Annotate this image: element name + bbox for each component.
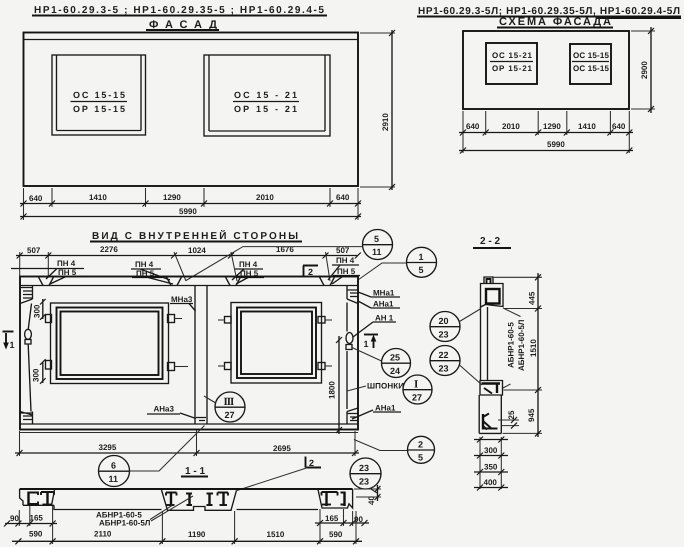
svg-text:27: 27 <box>412 393 422 403</box>
svg-text:23: 23 <box>359 477 369 487</box>
svg-text:300: 300 <box>32 368 41 382</box>
svg-text:III: III <box>224 396 235 408</box>
svg-text:ПН 4: ПН 4 <box>135 260 154 269</box>
svg-text:25: 25 <box>507 410 516 419</box>
svg-text:СХЕМА ФАСАДА: СХЕМА ФАСАДА <box>499 16 612 28</box>
svg-text:1: 1 <box>419 252 424 262</box>
svg-text:5990: 5990 <box>547 140 565 149</box>
svg-text:23: 23 <box>439 330 449 340</box>
svg-text:МНа1: МНа1 <box>373 289 395 298</box>
svg-text:3295: 3295 <box>99 443 117 452</box>
svg-text:НР1-60.29.3-5 ; НР1-60.29.35-5: НР1-60.29.3-5 ; НР1-60.29.35-5 ; НР1-60.… <box>34 5 324 16</box>
svg-text:590: 590 <box>329 530 343 539</box>
svg-text:5990: 5990 <box>179 207 197 216</box>
svg-text:ПН 4: ПН 4 <box>57 259 76 268</box>
svg-text:5: 5 <box>418 453 423 463</box>
svg-text:640: 640 <box>612 122 626 131</box>
svg-text:1: 1 <box>10 340 15 350</box>
svg-text:ВИД С ВНУТРЕННЕЙ СТОРОНЫ: ВИД С ВНУТРЕННЕЙ СТОРОНЫ <box>92 229 300 242</box>
svg-text:ОР 15-21: ОР 15-21 <box>492 64 533 73</box>
svg-text:300: 300 <box>484 446 498 455</box>
svg-text:ПН 4: ПН 4 <box>336 256 355 265</box>
svg-text:507: 507 <box>27 246 41 255</box>
svg-text:2: 2 <box>308 267 313 277</box>
svg-text:1800: 1800 <box>328 381 337 399</box>
svg-text:5: 5 <box>374 234 379 244</box>
svg-text:1 - 1: 1 - 1 <box>185 466 205 477</box>
svg-text:2276: 2276 <box>100 245 118 254</box>
svg-text:ОС 15-15: ОС 15-15 <box>573 64 610 73</box>
svg-text:90: 90 <box>354 515 363 524</box>
svg-text:640: 640 <box>29 194 43 203</box>
svg-text:АНа1: АНа1 <box>375 404 396 413</box>
svg-text:11: 11 <box>372 247 382 257</box>
svg-text:1510: 1510 <box>267 530 285 539</box>
svg-text:1410: 1410 <box>89 193 107 202</box>
svg-text:1510: 1510 <box>529 339 538 357</box>
svg-text:2910: 2910 <box>381 113 390 131</box>
svg-text:445: 445 <box>528 291 537 305</box>
svg-text:22: 22 <box>439 350 449 360</box>
svg-text:МНа3: МНа3 <box>171 295 193 304</box>
svg-text:2010: 2010 <box>256 193 274 202</box>
svg-text:I: I <box>414 379 418 391</box>
svg-text:6: 6 <box>111 461 116 471</box>
svg-text:2: 2 <box>418 440 423 450</box>
svg-text:350: 350 <box>484 463 498 472</box>
svg-text:2110: 2110 <box>94 530 112 539</box>
svg-text:24: 24 <box>390 366 400 376</box>
svg-text:ШПОНКИ: ШПОНКИ <box>367 382 404 391</box>
svg-text:165: 165 <box>325 514 339 523</box>
svg-text:90: 90 <box>10 514 19 523</box>
svg-text:1290: 1290 <box>543 122 561 131</box>
svg-text:ОС 15 - 21: ОС 15 - 21 <box>234 90 297 100</box>
svg-text:1: 1 <box>364 339 369 349</box>
svg-text:1410: 1410 <box>578 122 596 131</box>
svg-text:640: 640 <box>466 122 480 131</box>
svg-text:АН 1: АН 1 <box>375 314 394 323</box>
svg-text:2 - 2: 2 - 2 <box>480 236 500 247</box>
svg-text:590: 590 <box>29 530 43 539</box>
svg-text:165: 165 <box>30 514 44 523</box>
svg-text:ПН 5: ПН 5 <box>337 267 356 276</box>
svg-text:1024: 1024 <box>188 246 206 255</box>
svg-text:2695: 2695 <box>273 444 291 453</box>
svg-text:11: 11 <box>109 474 119 484</box>
svg-text:2010: 2010 <box>502 122 520 131</box>
svg-text:АНа1: АНа1 <box>373 300 394 309</box>
svg-text:27: 27 <box>225 410 235 420</box>
svg-text:25: 25 <box>390 353 400 363</box>
svg-text:2: 2 <box>309 458 314 468</box>
svg-text:300: 300 <box>33 304 42 318</box>
svg-text:640: 640 <box>336 193 350 202</box>
svg-text:20: 20 <box>439 316 449 326</box>
svg-text:АНа3: АНа3 <box>154 405 175 414</box>
svg-text:1190: 1190 <box>188 530 206 539</box>
svg-text:23: 23 <box>439 364 449 374</box>
svg-text:АБНР1-60-5Л: АБНР1-60-5Л <box>517 319 526 371</box>
svg-text:40: 40 <box>367 496 376 505</box>
svg-text:945: 945 <box>527 408 536 422</box>
svg-text:507: 507 <box>336 246 350 255</box>
svg-text:2900: 2900 <box>640 61 649 79</box>
svg-text:23: 23 <box>359 463 369 473</box>
svg-text:ПН 4: ПН 4 <box>239 260 258 269</box>
svg-text:ОР 15 - 21: ОР 15 - 21 <box>234 104 297 114</box>
svg-text:ОС 15-15: ОС 15-15 <box>573 51 610 60</box>
svg-text:400: 400 <box>484 478 498 487</box>
svg-text:АБНР1-60-5Л: АБНР1-60-5Л <box>99 519 151 528</box>
svg-text:5: 5 <box>419 265 424 275</box>
svg-text:1290: 1290 <box>163 193 181 202</box>
svg-text:АБНР1-60-5: АБНР1-60-5 <box>507 322 516 368</box>
svg-text:ОС 15-21: ОС 15-21 <box>492 51 533 60</box>
